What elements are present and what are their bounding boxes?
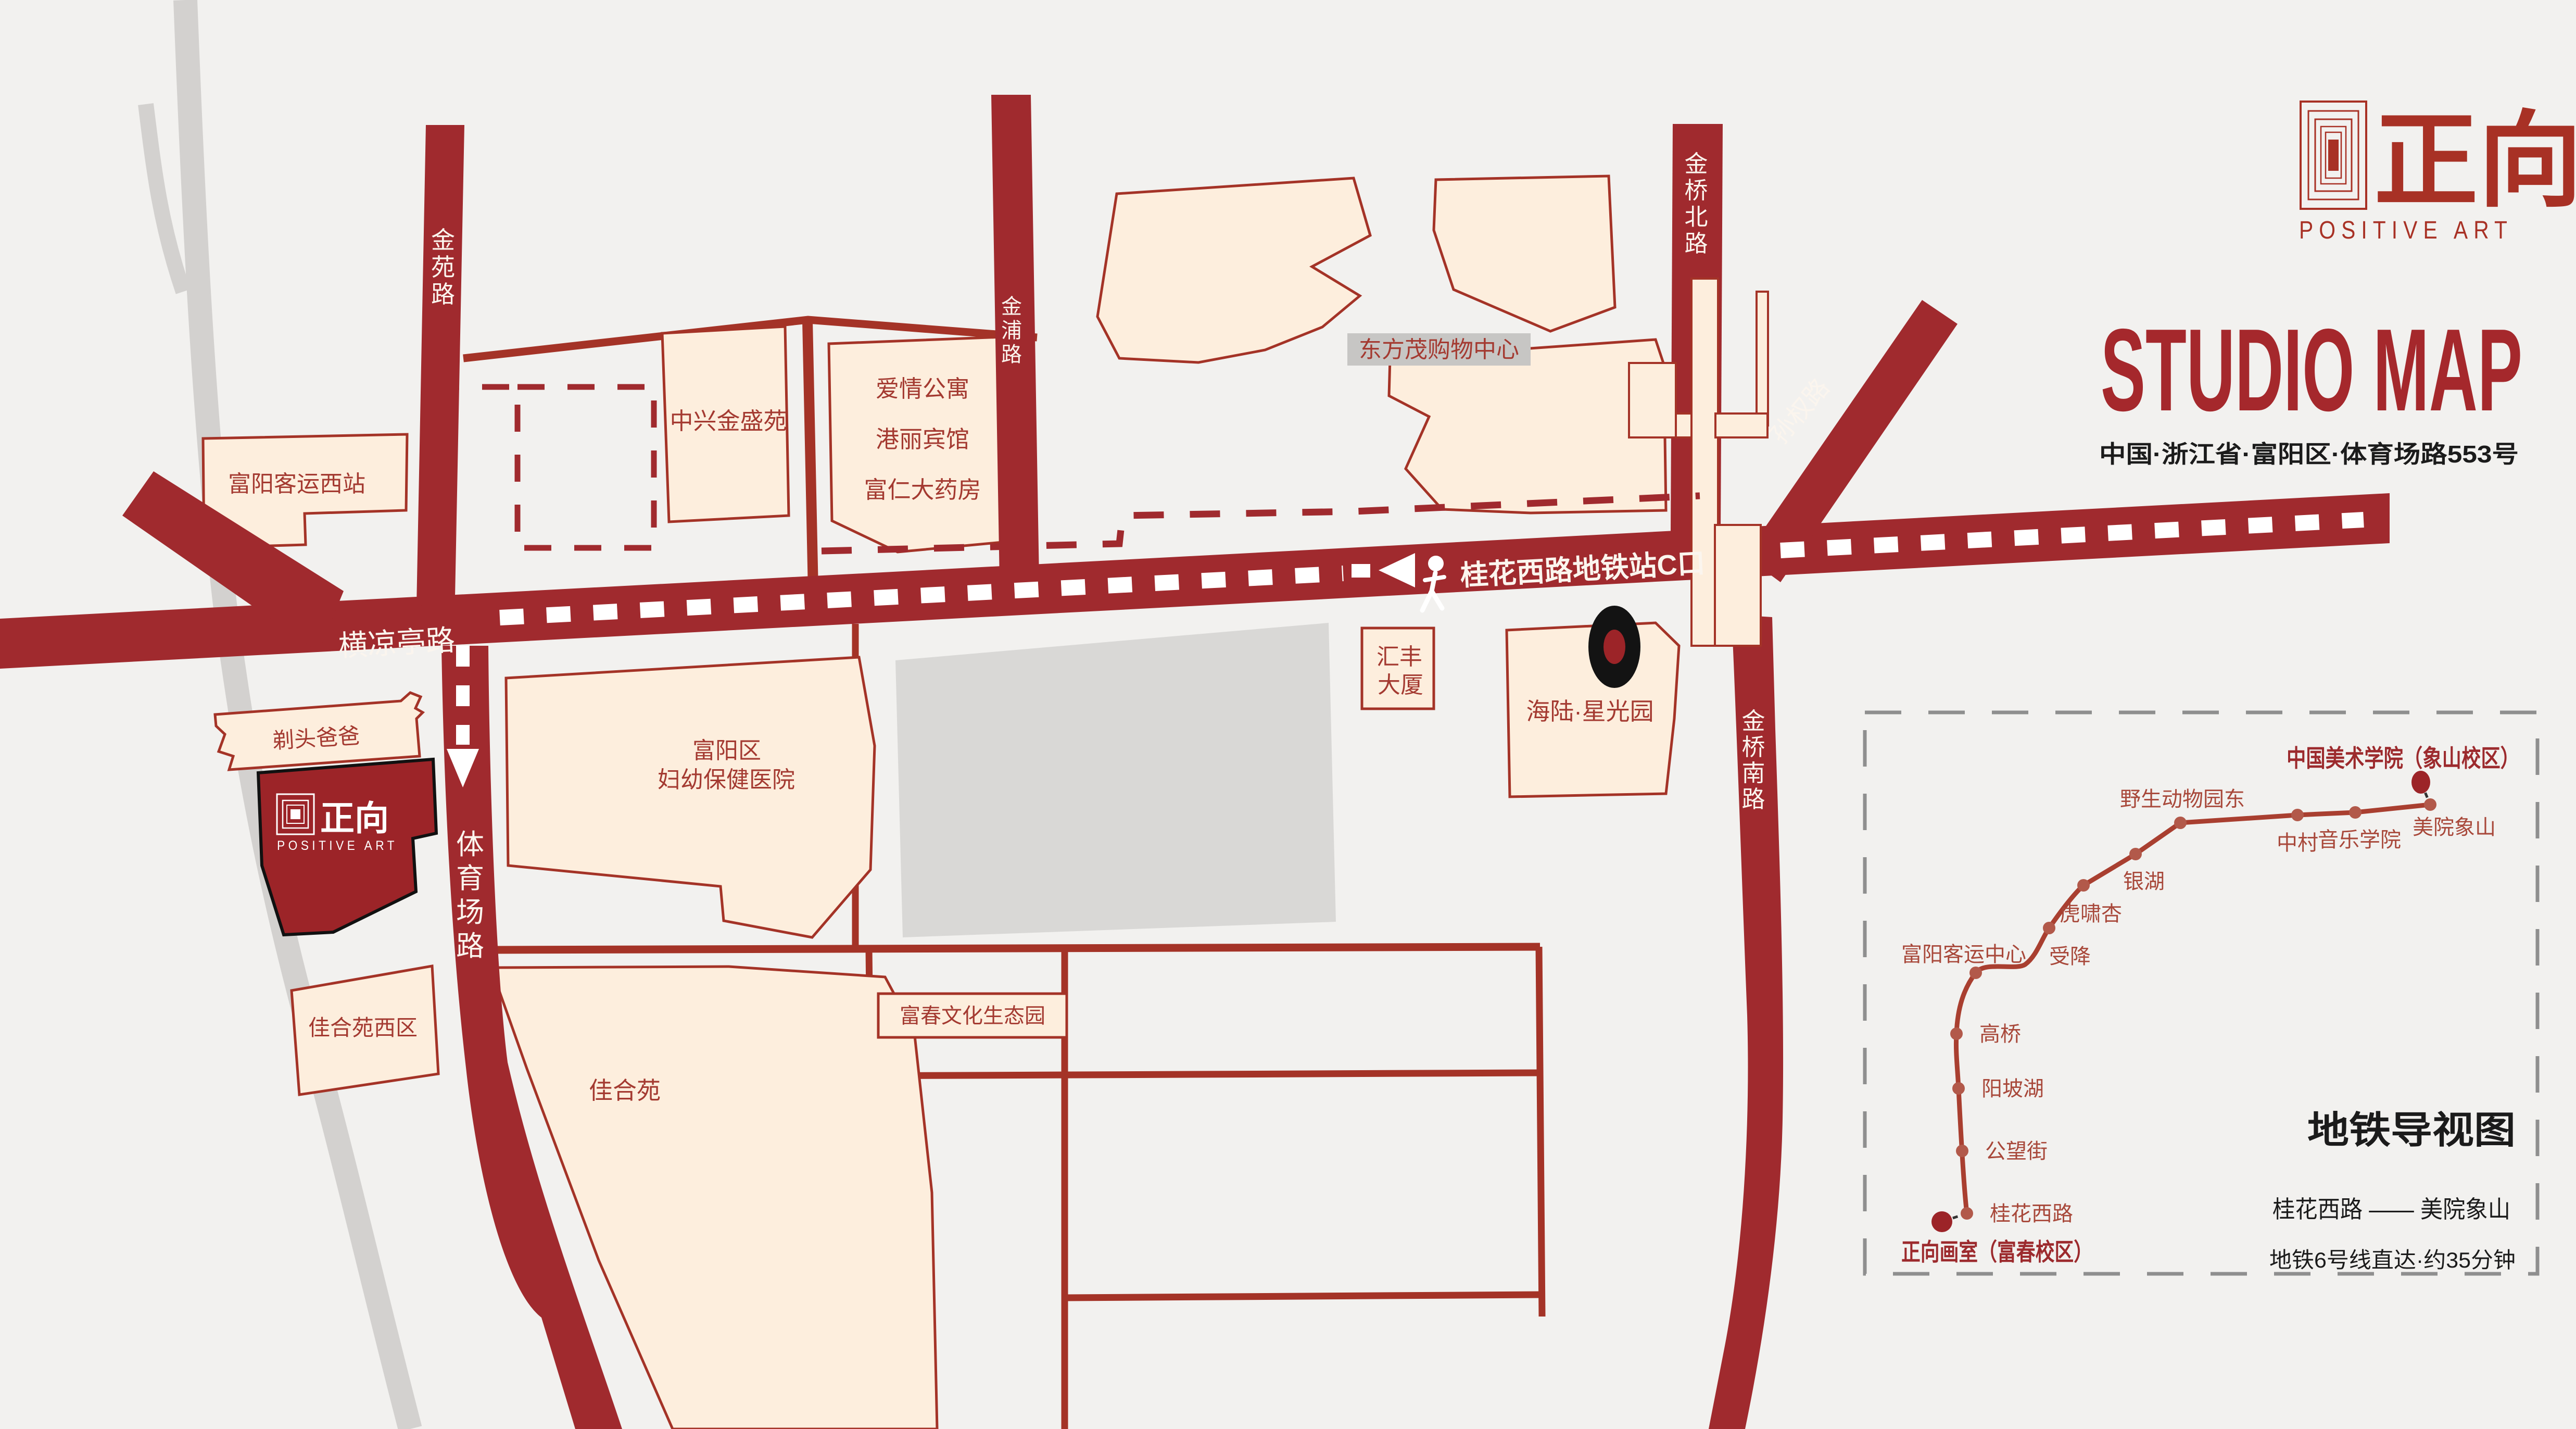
label-zhongxing-jinsheng: 中兴金盛苑 <box>670 408 787 434</box>
label-huifeng-2: 大厦 <box>1378 672 1423 698</box>
label-aiqing-apartment: 爱情公寓 <box>876 375 969 402</box>
station-yangpohu: 阳坡湖 <box>1981 1077 2044 1100</box>
label-huifeng-1: 汇丰 <box>1377 644 1422 670</box>
label-road-jinqiao-south: 金桥南路 <box>1741 708 1765 812</box>
metro-box-title: 地铁导视图 <box>2307 1110 2516 1151</box>
station-yinhu: 银湖 <box>2123 870 2165 893</box>
station-yesheng-dongwuyuan-east: 野生动物园东 <box>2120 788 2245 811</box>
label-fuyang-maternity-2: 妇幼保健医院 <box>658 767 795 793</box>
terminal-top-dot <box>2411 771 2430 794</box>
label-jiaheyuan: 佳合苑 <box>589 1077 661 1104</box>
label-fuchun-park: 富春文化生态园 <box>900 1005 1045 1027</box>
page-title: STUDIO MAP <box>2101 304 2522 435</box>
terminal-top-label: 中国美术学院（象山校区） <box>2287 745 2520 772</box>
station-meiyuan-xiangshan: 美院象山 <box>2413 816 2496 839</box>
label-road-jinpu: 金浦路 <box>1001 295 1022 366</box>
label-road-jinqiao-north: 金桥北路 <box>1684 151 1708 257</box>
gray-city-block <box>895 623 1336 937</box>
station-zhongcun: 中村 <box>2277 832 2318 855</box>
arrow-lead-dash <box>1352 564 1370 578</box>
label-road-hengliangting: 横凉亭路 <box>337 623 456 662</box>
metro-station-marker <box>1588 606 1640 688</box>
terminal-bottom-label: 正向画室（富春校区） <box>1901 1238 2093 1265</box>
station-gongwangjie: 公望街 <box>1985 1140 2048 1163</box>
metro-note: 地铁6号线直达·约35分钟 <box>2269 1248 2516 1272</box>
studio-logo-en: POSITIVE ART <box>277 838 398 853</box>
label-road-jinyuan: 金苑路 <box>431 227 455 308</box>
label-fuyang-west-bus-station: 富阳客运西站 <box>228 471 365 497</box>
label-gangli-hotel: 港丽宾馆 <box>876 426 969 453</box>
studio-map: 富阳客运西站 中兴金盛苑 爱情公寓 港丽宾馆 富仁大药房 汇丰 大厦 海陆·星光… <box>0 0 2576 1429</box>
label-fuyang-maternity-1: 富阳区 <box>692 738 761 763</box>
brand-logo-zh: 正向 <box>2374 99 2576 222</box>
station-fuyang-keyun-center: 富阳客运中心 <box>1901 943 2026 966</box>
label-hailu-starlight: 海陆·星光园 <box>1526 698 1653 725</box>
metro-route: 桂花西路 —— 美院象山 <box>2272 1196 2510 1223</box>
studio-logo-zh: 正向 <box>320 798 389 838</box>
studio-logo-icon <box>277 794 314 834</box>
mall-label: 东方茂购物中心 <box>1347 333 1531 366</box>
label-jiaheyuan-west: 佳合苑西区 <box>308 1016 418 1040</box>
station-yinyue-xueyuan: 音乐学院 <box>2318 829 2401 851</box>
studio-address: 中国·浙江省·富阳区·体育场路553号 <box>2099 441 2519 468</box>
brand-logo-en: POSITIVE ART <box>2299 217 2513 244</box>
poster: 富阳客运西站 中兴金盛苑 爱情公寓 港丽宾馆 富仁大药房 汇丰 大厦 海陆·星光… <box>0 0 2576 1429</box>
station-huxiaoxing: 虎啸杏 <box>2060 902 2122 925</box>
label-furen-pharmacy: 富仁大药房 <box>864 477 981 503</box>
station-shouxiang: 受降 <box>2049 945 2091 968</box>
terminal-bottom-dot <box>1931 1211 1952 1232</box>
station-gaoqiao: 高桥 <box>1979 1023 2021 1046</box>
station-guihuaxilu: 桂花西路 <box>1990 1202 2073 1225</box>
label-dongfangmao-mall: 东方茂购物中心 <box>1359 337 1519 362</box>
